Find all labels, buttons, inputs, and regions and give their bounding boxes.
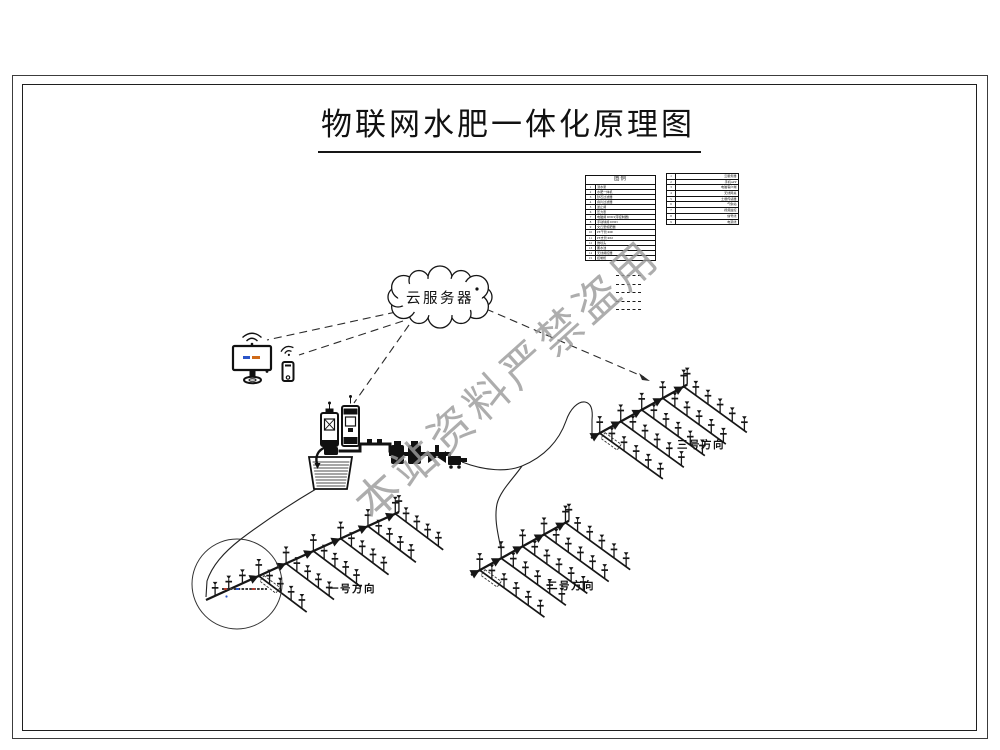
field-grid-3	[589, 368, 747, 479]
fertilizer-tank-b	[342, 395, 359, 446]
link-cloud-tank	[354, 325, 409, 403]
field-label-2: 二号方向	[547, 579, 595, 592]
field-grid-1	[206, 495, 443, 612]
antenna-icon	[328, 402, 331, 405]
link-cloud-phone	[299, 321, 403, 355]
phone-wifi-icon	[280, 345, 295, 358]
pipe-to-field1	[206, 489, 316, 597]
field-label-3: 三号方向	[677, 438, 725, 451]
field-label-1: 一号方向	[328, 582, 376, 595]
cloud-label: 云服务器	[406, 290, 474, 307]
link-arrowhead	[639, 373, 650, 381]
cloud-dot	[475, 287, 478, 290]
monitor-screen-orange	[252, 356, 260, 359]
pipe-to-field2	[496, 466, 522, 549]
pipe-main-right	[462, 462, 522, 470]
pipe-to-field3	[522, 402, 592, 466]
monitor-icon	[233, 333, 271, 383]
fertilizer-tank-a	[321, 402, 338, 447]
field-grid-2	[469, 504, 630, 617]
monitor-screen-blue	[243, 356, 250, 359]
monitor-wifi-icon	[243, 333, 262, 345]
link-cloud-monitor	[267, 312, 396, 340]
antenna-icon	[349, 395, 352, 398]
phone-icon	[280, 345, 295, 381]
drawing-sheet: 物联网水肥一体化原理图 图例 1潜水泵2水肥一体机3砂石过滤器4叠片过滤器5逆止…	[0, 0, 1000, 750]
